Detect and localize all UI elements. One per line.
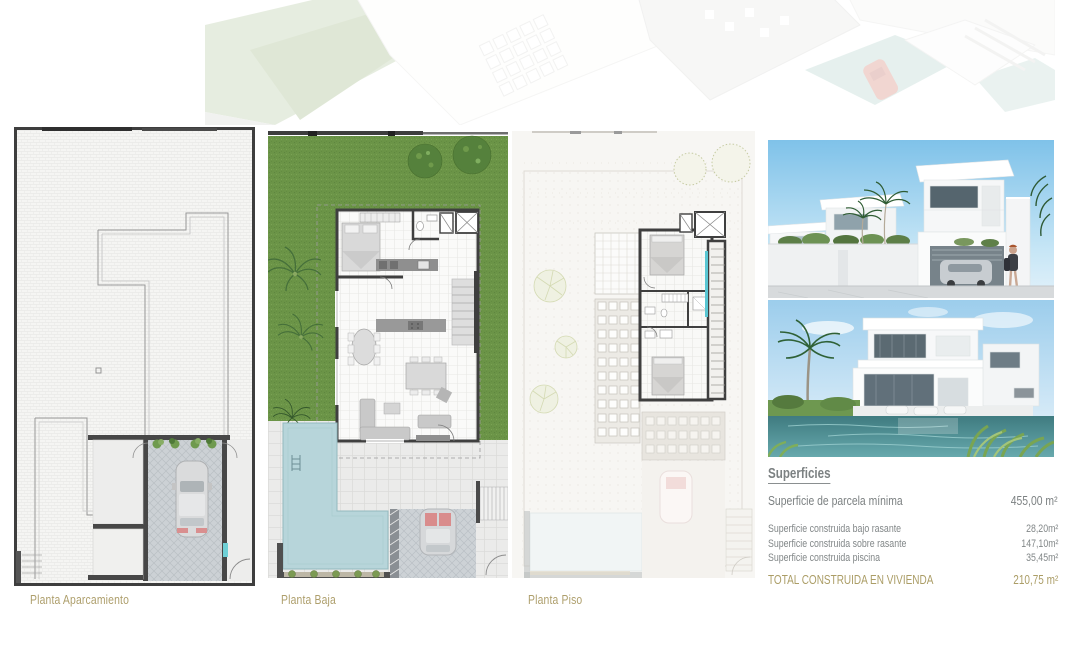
faded-driveway: [642, 461, 725, 578]
superficies-panel: Superficies Superficie de parcela mínima…: [768, 466, 1058, 587]
plan-label-piso: Planta Piso: [528, 592, 596, 607]
garage-area: [88, 435, 252, 581]
house-ground-floor: [335, 210, 478, 443]
superficies-row-sobre-rasante: Superficie construida sobre rasante 147,…: [768, 537, 1058, 552]
lower-pergola: [642, 412, 725, 460]
plan-baja-drawing: [268, 131, 508, 578]
superficies-row-bajo-rasante: Superficie construida bajo rasante 28,20…: [768, 522, 1058, 537]
dining-table: [406, 357, 446, 395]
pergola-grid: [595, 299, 640, 443]
row-label: Superficie construida piscina: [768, 551, 880, 566]
plan-aparcamiento-drawing: [14, 127, 255, 587]
pool-garden-render: [768, 300, 1054, 457]
row-value: 455,00 m²: [1011, 493, 1058, 508]
superficies-title: Superficies: [768, 466, 1058, 484]
sun-loungers: [886, 406, 966, 415]
bed: [342, 223, 380, 271]
glass-balustrade: [705, 251, 708, 317]
plan-label-aparcamiento: Planta Aparcamiento: [30, 592, 154, 607]
skylight-panel: [595, 233, 640, 294]
bed: [652, 357, 684, 395]
row-label: Superficie de parcela mínima: [768, 493, 903, 508]
superficies-row-parcela: Superficie de parcela mínima 455,00 m²: [768, 493, 1058, 508]
row-label: Superficie construida sobre rasante: [768, 537, 906, 552]
total-value: 210,75 m²: [1013, 573, 1058, 587]
faded-stairs: [726, 509, 752, 575]
row-value: 28,20m²: [1026, 522, 1058, 537]
row-value: 35,45m²: [1026, 551, 1058, 566]
total-label: TOTAL CONSTRUIDA EN VIVIENDA: [768, 573, 933, 587]
plan-label-baja: Planta Baja: [281, 592, 350, 607]
car-in-garage: [940, 260, 992, 288]
faded-pool: [524, 511, 642, 578]
house-upper-floor: [595, 212, 725, 460]
oval-dining-table: [348, 329, 380, 365]
plan-piso-drawing: [512, 131, 755, 578]
superficies-row-piscina: Superficie construida piscina 35,45m²: [768, 551, 1058, 566]
superficies-row-total: TOTAL CONSTRUIDA EN VIVIENDA 210,75 m²: [768, 573, 1058, 587]
street-elevation-render: [768, 140, 1054, 298]
bed: [650, 235, 684, 275]
aerial-site-render: [205, 0, 1055, 125]
row-label: Superficie construida bajo rasante: [768, 522, 901, 537]
driveway: [390, 509, 476, 578]
exterior-stairs: [476, 481, 508, 523]
garden-wall: [768, 233, 920, 288]
car-top-view: [420, 509, 456, 555]
car-top-view: [172, 461, 212, 537]
row-value: 147,10m²: [1021, 537, 1058, 552]
